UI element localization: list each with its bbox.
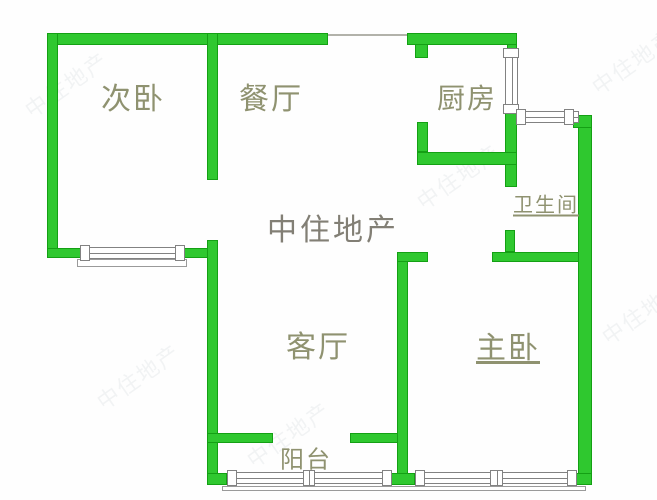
window-sill-bottom <box>222 486 586 491</box>
window-cap <box>564 109 574 125</box>
label-master-bedroom: 主卧 <box>476 323 540 367</box>
wall-bathroom-left-stub <box>505 230 515 252</box>
window-cap <box>80 245 90 261</box>
label-bathroom: 卫生间 <box>513 189 579 218</box>
wall-living-room-left <box>207 240 218 483</box>
window-cap <box>382 470 392 486</box>
window-cap <box>415 470 425 486</box>
window-divider <box>490 470 503 486</box>
window-cap <box>567 470 577 486</box>
label-balcony: 阳台 <box>280 440 332 475</box>
wall-left <box>47 33 58 258</box>
window-sill-secondary-bedroom <box>77 259 187 267</box>
label-kitchen: 厨房 <box>437 77 497 117</box>
wall-top-left <box>47 33 328 45</box>
faint-watermark: 中住地产 <box>90 335 187 416</box>
wall-kitchen-door-top-stub <box>415 44 428 58</box>
label-dining-room: 餐厅 <box>239 74 303 118</box>
label-living-room: 客厅 <box>286 322 350 366</box>
wall-bottom-middle-pier <box>390 473 415 485</box>
wall-living-master-divider <box>397 252 408 483</box>
window-kitchen <box>505 53 518 111</box>
window-cap <box>516 109 526 125</box>
wall-bedroom-dining-divider <box>207 33 218 180</box>
window-secondary-bedroom <box>85 247 180 259</box>
wall-kitchen-door-bottom-stub <box>417 122 428 152</box>
wall-balcony-stub-left <box>207 433 273 443</box>
entry-door-opening-line <box>328 34 407 36</box>
faint-watermark: 中住地产 <box>595 270 657 351</box>
window-cap <box>227 470 237 486</box>
wall-balcony-bottom-corner <box>207 473 227 485</box>
wall-right <box>578 115 592 485</box>
label-secondary-bedroom: 次卧 <box>101 74 165 118</box>
window-cap <box>503 48 519 58</box>
floorplan-canvas: 中住地产 中住地产 中住地产 中住地产 中住地产 中住地产 <box>0 0 657 500</box>
wall-kitchen-bottom <box>417 152 517 165</box>
faint-watermark: 中住地产 <box>585 20 657 101</box>
wall-divider-top-nub <box>397 252 428 262</box>
wall-master-bedroom-top <box>492 252 590 262</box>
brand-watermark: 中住地产 <box>267 205 399 249</box>
faint-watermark: 中住地产 <box>18 43 115 124</box>
window-cap <box>175 245 185 261</box>
